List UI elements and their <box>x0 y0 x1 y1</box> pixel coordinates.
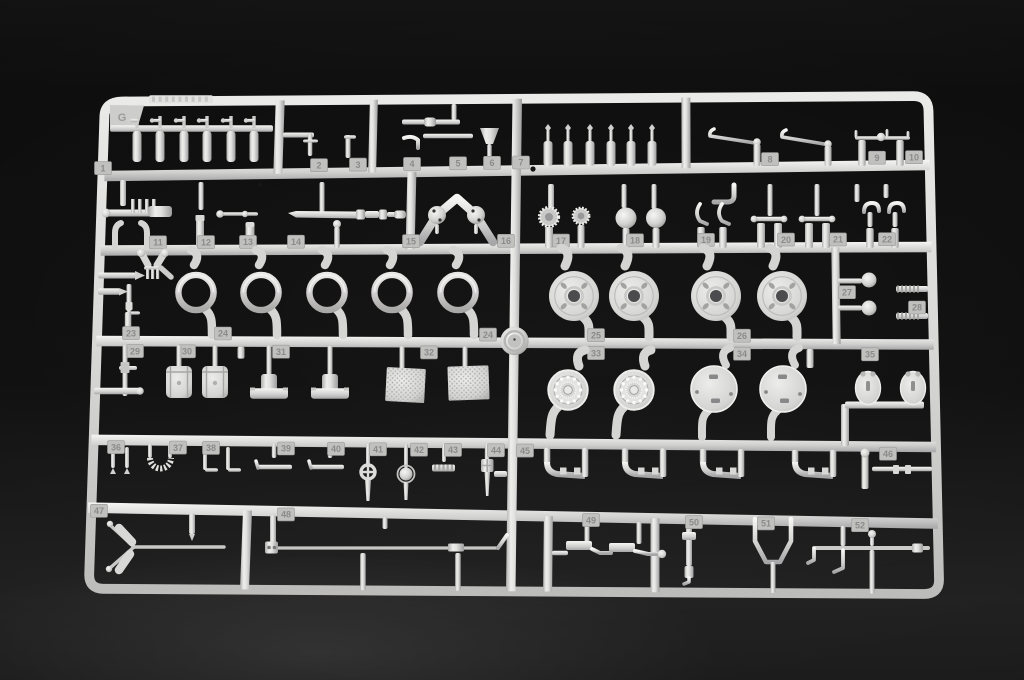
svg-text:31: 31 <box>276 347 286 357</box>
svg-text:16: 16 <box>501 236 511 246</box>
svg-text:28: 28 <box>912 303 922 313</box>
svg-text:15: 15 <box>406 236 416 246</box>
svg-text:48: 48 <box>281 510 291 520</box>
svg-text:5: 5 <box>455 159 460 169</box>
svg-text:14: 14 <box>291 237 301 247</box>
svg-text:42: 42 <box>414 445 424 455</box>
svg-text:23: 23 <box>126 328 136 338</box>
svg-text:4: 4 <box>409 159 414 169</box>
svg-text:25: 25 <box>591 330 601 340</box>
svg-text:39: 39 <box>281 444 291 454</box>
svg-text:38: 38 <box>206 443 216 453</box>
svg-text:50: 50 <box>689 517 699 527</box>
svg-text:7: 7 <box>518 158 523 168</box>
svg-text:24: 24 <box>483 330 493 340</box>
svg-text:6: 6 <box>489 158 494 168</box>
svg-text:2: 2 <box>316 160 321 170</box>
svg-text:45: 45 <box>520 446 530 456</box>
svg-text:35: 35 <box>865 350 875 360</box>
svg-text:29: 29 <box>130 346 140 356</box>
svg-text:13: 13 <box>243 237 253 247</box>
svg-text:49: 49 <box>586 515 596 525</box>
svg-text:37: 37 <box>173 443 183 453</box>
svg-text:40: 40 <box>331 444 341 454</box>
svg-text:43: 43 <box>448 445 458 455</box>
svg-text:47: 47 <box>94 506 104 516</box>
svg-text:8: 8 <box>767 154 772 164</box>
svg-text:1: 1 <box>100 163 105 173</box>
svg-text:44: 44 <box>491 446 501 456</box>
svg-text:36: 36 <box>111 442 121 452</box>
svg-text:12: 12 <box>201 237 211 247</box>
svg-text:10: 10 <box>909 152 919 162</box>
svg-text:11: 11 <box>153 238 163 248</box>
svg-text:26: 26 <box>737 331 747 341</box>
svg-text:24: 24 <box>218 329 228 339</box>
svg-text:34: 34 <box>737 349 747 359</box>
svg-text:33: 33 <box>591 348 601 358</box>
svg-text:G: G <box>118 112 127 124</box>
svg-text:27: 27 <box>842 287 852 297</box>
svg-text:30: 30 <box>182 347 192 357</box>
svg-text:3: 3 <box>355 160 360 170</box>
svg-text:46: 46 <box>883 449 893 459</box>
svg-text:9: 9 <box>874 153 879 163</box>
svg-text:51: 51 <box>761 519 771 529</box>
svg-text:22: 22 <box>882 234 892 244</box>
svg-text:21: 21 <box>833 235 843 245</box>
svg-text:41: 41 <box>373 445 383 455</box>
svg-text:52: 52 <box>855 520 865 530</box>
svg-text:20: 20 <box>781 235 791 245</box>
svg-text:32: 32 <box>424 348 434 358</box>
svg-text:18: 18 <box>630 236 640 246</box>
